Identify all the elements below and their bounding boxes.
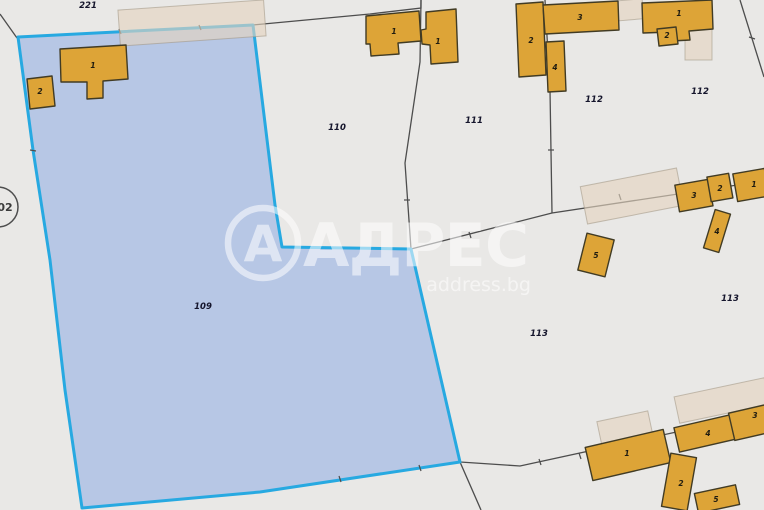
watermark-domain-text: address.bg — [426, 274, 531, 296]
building-number-label: 3 — [691, 191, 696, 200]
watermark-logo-letter: А — [244, 215, 283, 273]
building-number-label: 4 — [705, 429, 710, 438]
parcel-number-label: 111 — [465, 116, 483, 126]
building-number-label: 1 — [751, 180, 756, 189]
parcel-number-label: 221 — [79, 1, 97, 11]
building-number-label: 2 — [37, 87, 42, 96]
building-number-label: 2 — [678, 479, 683, 488]
building-number-label: 3 — [577, 13, 582, 22]
building-number-label: 1 — [624, 449, 629, 458]
parcel-number-label: 109 — [194, 302, 212, 312]
parcel-number-label: 112 — [585, 95, 603, 105]
parcel-number-label: 110 — [328, 123, 346, 133]
parcel-number-label: 113 — [721, 294, 739, 304]
parcel-number-label: 113 — [530, 329, 548, 339]
cadastral-map-canvas[interactable]: 221110111112112109113113 121123412321451… — [0, 0, 764, 510]
building[interactable] — [733, 168, 764, 201]
building-number-label: 5 — [593, 251, 598, 260]
building-number-label: 5 — [713, 495, 718, 504]
building-number-label: 3 — [752, 411, 757, 420]
building-number-label: 2 — [664, 31, 669, 40]
building-number-label: 1 — [90, 61, 95, 70]
building-number-label: 2 — [528, 36, 533, 45]
building-number-label: 1 — [391, 27, 396, 36]
watermark-brand-text: АДРЕС — [303, 211, 531, 281]
building-number-label: 4 — [552, 63, 557, 72]
building-number-label: 4 — [714, 227, 719, 236]
cadastral-map[interactable]: 221110111112112109113113 121123412321451… — [0, 0, 764, 510]
building-number-label: 2 — [717, 184, 722, 193]
building-number-label: 1 — [676, 9, 681, 18]
parcel-number-label: 112 — [691, 87, 709, 97]
building-number-label: 1 — [435, 37, 440, 46]
circled-point-label-text: 02 — [0, 201, 13, 214]
